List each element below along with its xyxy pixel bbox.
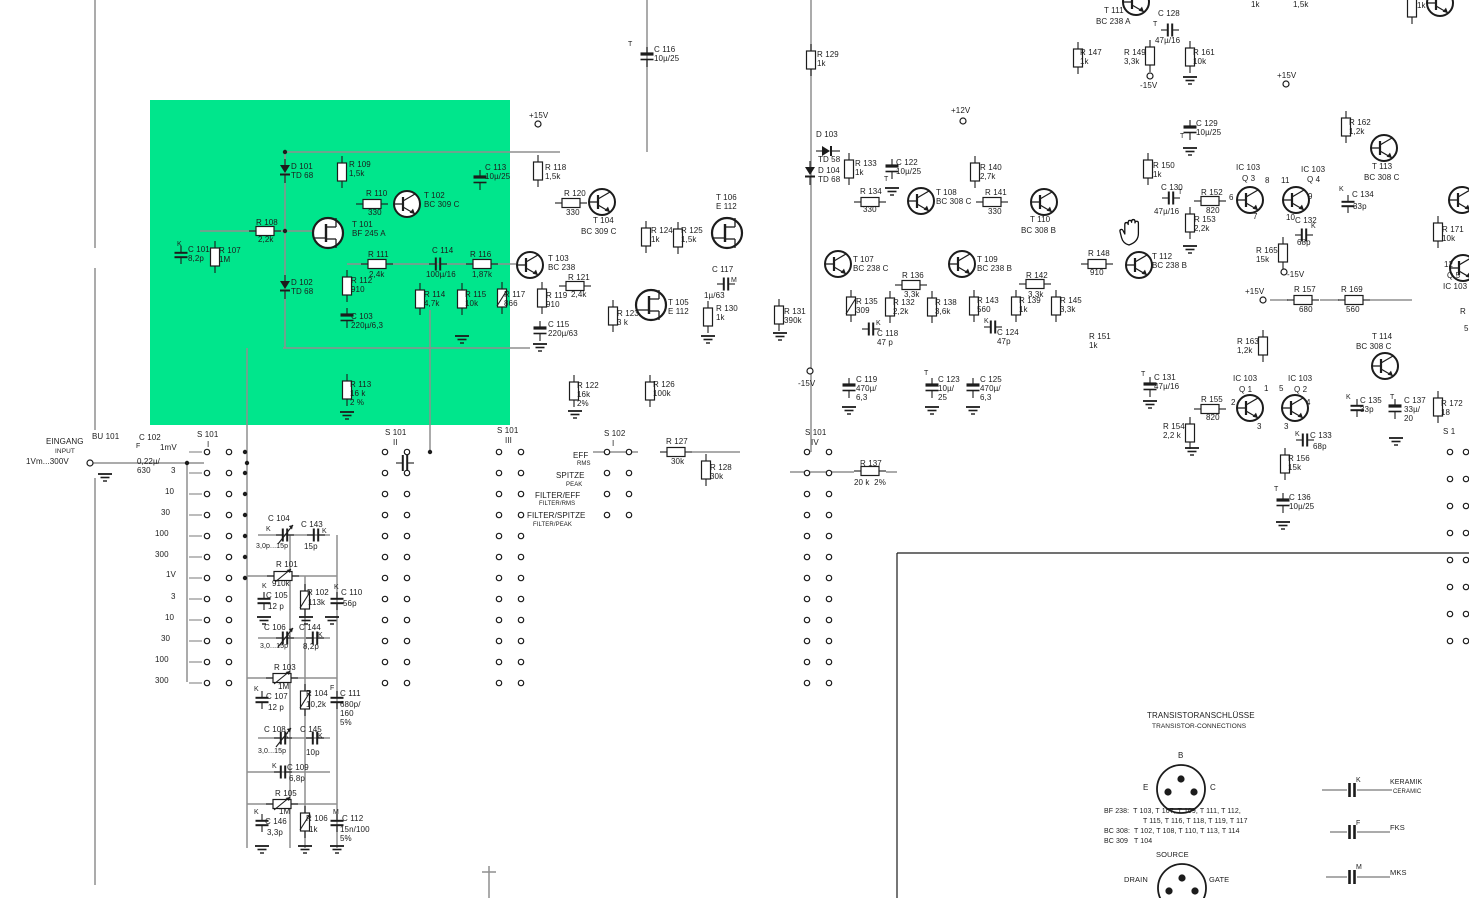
component-label: C 104 [268,515,290,524]
component-label: K [318,632,323,640]
component-label: Q 2 [1294,386,1307,395]
component-label: C 111 [340,690,361,699]
component-label: PEAK [566,482,582,489]
component-label: 4 [1306,399,1311,408]
component-label: FILTER/RMS [539,501,575,508]
component-label: 560 [1346,306,1360,315]
component-label: 56p [343,600,357,609]
component-label: C 119 470µ/ 6,3 [856,376,877,402]
component-label: M [1356,864,1362,872]
component-label: R 142 [1026,272,1048,281]
component-label: K [1356,777,1361,785]
component-label: R 118 1,5k [545,164,566,182]
component-label: T 108 BC 308 C [936,189,971,207]
legend-title-de: TRANSISTORANSCHLÜSSE [1147,712,1255,721]
component-label: 1M [278,683,289,692]
component-label: K [334,584,339,592]
component-label: R 169 [1341,286,1363,295]
component-label: 15n/100 5% [340,826,370,844]
component-label: 100 [155,530,169,539]
component-label: K [876,320,881,328]
component-label: C 103 220µ/6,3 [351,313,383,331]
component-label: C 106 [264,624,286,633]
component-label: K [1339,186,1344,194]
component-label: 2,4k [571,291,587,300]
component-label: 1k [1251,1,1260,10]
component-label: K [322,528,327,536]
component-label: R 153 2,2k [1194,216,1216,234]
switch-s101-IV: S 101 [805,429,826,438]
component-label: T [1141,371,1145,379]
component-label: R 152 [1201,189,1223,198]
component-label: K [254,809,259,817]
component-label: R 163 1,2k [1237,338,1259,356]
component-label: R 117 866 [504,291,525,309]
component-label: 20 k 2% [854,479,886,488]
component-label: R 116 [470,251,491,260]
component-label: R 136 [902,272,924,281]
component-label: E [1143,784,1148,793]
component-label: R 162 1,2k [1349,119,1371,137]
component-label: 680 [1299,306,1313,315]
component-label: R 172 18 [1441,400,1463,418]
component-label: BC 309 T 104 [1104,838,1152,846]
component-label: T 107 BC 238 C [853,256,888,274]
component-label: 30 [161,635,170,644]
component-label: 10 [165,614,174,623]
component-label: R 130 1k [716,305,738,323]
component-label: T [628,41,632,49]
component-label: 9 [1308,193,1313,202]
component-label: M [333,809,339,817]
component-label: C 110 [341,589,362,598]
component-label: R 120 [564,190,586,199]
component-label: 3,3k [904,291,920,300]
component-label: EFF [573,452,588,461]
component-label: BC 308 B [1021,227,1056,236]
component-label: K [286,632,291,640]
component-label: F [136,443,140,451]
component-label: 100 [155,656,169,665]
component-label: C 122 10µ/25 [896,159,921,177]
component-label: 3,3p [267,829,283,838]
component-label: 2,4k [369,271,385,280]
component-label: R 138 3,6k [935,299,957,317]
component-label: RMS [577,461,591,468]
component-label: C [1210,784,1216,793]
component-label: C 123 10µ/ 25 [938,376,960,402]
component-label: C 113 10µ/25 [485,164,510,182]
component-label: K [266,526,271,534]
component-label: BC 308 C [1364,174,1399,183]
component-label: 8 [1265,177,1270,186]
component-label: C 133 [1310,432,1332,441]
component-label: T 115, T 116, T 118, T 119, T 117 [1143,818,1248,826]
switch-s101-I: S 101 [197,431,218,440]
component-label: R 102 [307,589,329,598]
component-label: R 156 15k [1288,455,1310,473]
component-label: SOURCE [1156,851,1189,859]
component-label: T [1178,189,1182,197]
component-label: D 104 TD 68 [818,167,840,185]
component-label: K [284,733,289,741]
component-label: R 115 10k [465,291,486,309]
component-label: F [330,685,334,693]
component-label: C 129 10µ/25 [1196,120,1221,138]
component-label: T [1390,394,1394,402]
component-label: 5 [1279,385,1284,394]
component-label: 300 [155,677,169,686]
component-label: 1k [309,826,318,835]
component-label: T [1180,133,1184,141]
component-label: Q 4 [1307,176,1320,185]
component-label: R 111 [368,251,389,260]
switch-s102: S 102 [604,430,625,439]
component-label: 12 p [268,603,284,612]
component-label: 820 [1206,414,1220,423]
component-label: K [254,686,259,694]
component-label: 30 [161,509,170,518]
component-label: -15V [1140,82,1157,91]
component-label: C 143 [301,521,323,530]
component-label: R 134 [860,188,882,197]
cap-legend-m: MKS [1390,869,1407,877]
component-label: C 146 [265,818,287,827]
component-label: Q 1 [1239,386,1252,395]
component-label: 300 [155,551,169,560]
component-label: 10,2k [306,701,326,710]
component-label: R 104 [306,690,328,699]
component-label: BC 309 C [581,228,616,237]
component-label: CERAMIC [1393,789,1421,796]
component-label: C 117 [712,266,733,275]
component-label: BC 308: T 102, T 108, T 110, T 113, T 11… [1104,828,1240,836]
component-label: T 106 E 112 [716,194,737,212]
component-label: -15V [798,380,815,389]
component-label: 5 [1464,325,1469,334]
component-label: IV [811,439,819,448]
component-label: C 112 [342,815,363,824]
component-label: C 136 10µ/25 [1289,494,1314,512]
component-label: C 115 220µ/63 [548,321,578,339]
component-label: R 151 1k [1089,333,1111,351]
component-label: M [731,277,737,285]
component-label: R 147 1k [1080,49,1102,67]
component-label: C 135 33p [1360,397,1382,415]
component-label: DRAIN [1124,876,1148,884]
component-label: 3,0...15p [260,643,288,651]
component-label: 10p [306,749,320,758]
component-label: Q 5 [1447,272,1460,281]
component-label: BU 101 [92,433,119,442]
component-label: R 105 [275,790,297,799]
component-label: 100µ/16 [426,271,456,280]
component-label: C 109 [287,764,309,773]
component-label: IC 103 [1301,166,1325,175]
component-label: K [272,763,277,771]
switch-s101-III: S 101 [497,427,518,436]
component-label: T 112 BC 238 B [1152,253,1187,271]
component-label: S 1 [1443,428,1455,437]
component-label: Q 3 [1242,175,1255,184]
component-label: GATE [1209,876,1229,884]
component-label: 2 [1231,399,1236,408]
component-label: IC 103 [1233,375,1257,384]
component-label: IC 103 [1236,164,1260,173]
schematic-canvas[interactable]: D 101 TD 68R 109 1,5kR 110330T 102 BC 30… [0,0,1469,898]
component-label: 68p [1313,443,1327,452]
component-label: II [393,439,398,448]
component-label: C 116 10µ/25 [654,46,679,64]
component-label: R 110 [366,190,387,199]
component-label: T 103 BC 238 [548,255,575,273]
input-label-en: INPUT [55,448,75,455]
component-label: R 143 560 [977,297,999,315]
component-label: C 108 [264,726,286,735]
component-label: R 137 [860,460,882,469]
component-label: D 102 TD 68 [291,279,313,297]
component-label: C 128 [1158,10,1180,19]
cap-legend-f: FKS [1390,824,1405,832]
component-label: 910k [272,580,290,589]
component-label: R 140 2,7k [980,164,1002,182]
component-label: +15V [1277,72,1296,81]
component-label: R 141 [985,189,1007,198]
component-label: 47µ/16 [1155,37,1180,46]
component-label: T [1274,486,1278,494]
switch-s101-II: S 101 [385,429,406,438]
component-label: +15V [1245,288,1264,297]
component-label: D 103 [816,131,838,140]
component-label: C 105 [266,592,288,601]
component-label: 1µ/63 [704,292,725,301]
component-label: 10 [1286,214,1295,223]
component-label: K [1295,431,1300,439]
component-label: 0,22µ/ 630 [137,458,160,476]
component-label: K [262,583,267,591]
component-label: 12 p [268,704,284,713]
component-label: R 107 1M [219,247,241,265]
transistor-list: BF 238: T 103, T 107, T 109, T 111, T 11… [1104,808,1241,816]
component-label: R 129 1k [817,51,839,69]
component-label: R 121 [568,274,590,283]
component-label: F [1356,820,1360,828]
component-label: 1 [1264,385,1269,394]
component-label: R 124 1k [651,227,673,245]
component-label: C 134 [1352,191,1374,200]
component-label: B [1178,752,1183,761]
component-label: 68p [1297,239,1311,248]
component-label: 33p [1353,203,1367,212]
component-label: R 122 16k 2% [577,382,599,408]
component-label: T 105 E 112 [668,299,689,317]
component-label: K [1346,394,1351,402]
component-label: 1,5k [1293,1,1309,10]
component-label: R 149 3,3k [1124,49,1146,67]
component-label: K [318,733,323,741]
component-label: R 161 10k [1193,49,1215,67]
component-label: 910 [1090,269,1104,278]
component-label: C 102 [139,434,161,443]
component-label: C 114 [432,247,453,256]
component-label: 12 [1444,261,1453,270]
component-label: R 109 1,5k [349,161,371,179]
component-label: 1M [279,808,290,817]
component-label: T 114 [1372,333,1392,342]
input-range-label: 1Vm...300V [26,458,69,467]
component-label: T [884,176,888,184]
component-label: T 104 [593,217,614,226]
component-label: 15p [304,543,318,552]
component-label: R 135 309 [856,298,878,316]
component-label: 1k [1417,2,1426,11]
component-label: BC 238 A [1096,18,1131,27]
component-label: 680p/ 160 5% [340,701,361,727]
component-label: +12V [951,107,970,116]
component-label: R 113 16 k 2 % [350,381,371,407]
labels-layer: D 101 TD 68R 109 1,5kR 110330T 102 BC 30… [0,0,1469,898]
component-label: R 150 1k [1153,162,1175,180]
component-label: K [1311,223,1316,231]
input-label-de: EINGANG [46,438,84,447]
component-label: R 123 3 k [617,310,639,328]
component-label: T 110 [1030,216,1050,225]
component-label: 3,0p...15p [256,543,288,551]
component-label: D 101 TD 68 [291,163,313,181]
component-label: T 102 BC 309 C [424,192,459,210]
component-label: 2,2k [258,236,274,245]
component-label: 330 [368,209,382,218]
component-label: 7 [1253,213,1258,222]
component-label: R 114 4,7k [424,291,445,309]
component-label: 6,8p [289,775,305,784]
component-label: C 118 47 p [877,330,898,348]
component-label: C 125 470µ/ 6,3 [980,376,1002,402]
component-label: III [505,437,512,446]
component-label: R 148 [1088,250,1110,259]
component-label: 1,87k [472,271,492,280]
component-label: K [984,318,989,326]
component-label: IC 103 [1288,375,1312,384]
component-label: C 107 [266,693,288,702]
component-label: T 101 BF 245 A [352,221,386,239]
component-label: R 131 390k [784,308,806,326]
component-label: 3 [1257,423,1262,432]
component-label: R 165 15k [1256,247,1278,265]
component-label: R 133 1k [855,160,877,178]
component-label: FILTER/PEAK [533,522,572,529]
component-label: IC 103 [1443,283,1467,292]
component-label: R 108 [256,219,278,228]
component-label: R 126 100k [653,381,675,399]
component-label: R 101 [276,561,298,570]
component-label: 1mV [160,444,177,453]
component-label: 6 [1229,194,1234,203]
component-label: 3,0...15p [258,748,286,756]
component-label: R 127 [666,438,688,447]
component-label: FILTER/SPITZE [527,512,586,521]
component-label: I [612,440,614,449]
component-label: 113k [308,599,325,608]
component-label: T [1153,21,1157,29]
component-label: 10 [165,488,174,497]
component-label: 47µ/16 [1154,208,1179,217]
component-label: R 154 2,2 k [1163,423,1185,441]
component-label: R 157 [1294,286,1316,295]
component-label: -15V [1287,271,1304,280]
component-label: R 171 10k [1442,226,1464,244]
component-label: 330 [566,209,580,218]
component-label: R [1460,308,1466,317]
component-label: R 128 30k [710,464,732,482]
component-label: C 101 8,2p [188,246,210,264]
component-label: 330 [863,206,877,215]
component-label: R 119 910 [546,292,567,310]
component-label: C 137 33µ/ 20 [1404,397,1426,423]
component-label: 8,2p [303,643,319,652]
component-label: +15V [529,112,548,121]
component-label: 11 [1281,177,1290,186]
component-label: 3 [171,593,176,602]
component-label: T [924,370,928,378]
component-label: 30k [671,458,684,467]
component-label: T 109 BC 238 B [977,256,1012,274]
component-label: 3 [171,467,176,476]
component-label: I [207,441,209,450]
component-label: R 155 [1201,396,1223,405]
component-label: R 103 [274,664,296,673]
component-label: 1V [166,571,176,580]
component-label: 3 [1284,423,1289,432]
component-label: TD 58 [818,156,840,165]
component-label: R 125 1,5k [681,227,703,245]
component-label: R 145 3,3k [1060,297,1082,315]
component-label: FILTER/EFF [535,492,580,501]
legend-title-en: TRANSISTOR-CONNECTIONS [1152,723,1246,730]
component-label: R 132 2,2k [893,299,915,317]
component-label: T 111 [1104,7,1124,16]
component-label: C 124 47p [997,329,1019,347]
component-label: T 113 [1372,163,1392,172]
component-label: C 131 47µ/16 [1154,374,1179,392]
component-label: BC 308 C [1356,343,1391,352]
component-label: K [177,241,182,249]
component-label: SPITZE [556,472,585,481]
cap-legend-k: KERAMIK [1390,779,1422,787]
component-label: 330 [988,208,1002,217]
component-label: R 106 [306,815,328,824]
component-label: 3,3k [1028,291,1044,300]
